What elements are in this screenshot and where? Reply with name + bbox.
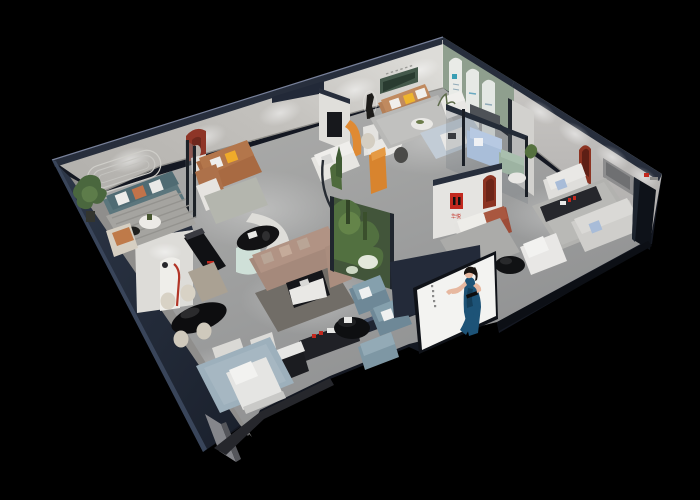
svg-text:华悦: 华悦 <box>451 213 461 220</box>
